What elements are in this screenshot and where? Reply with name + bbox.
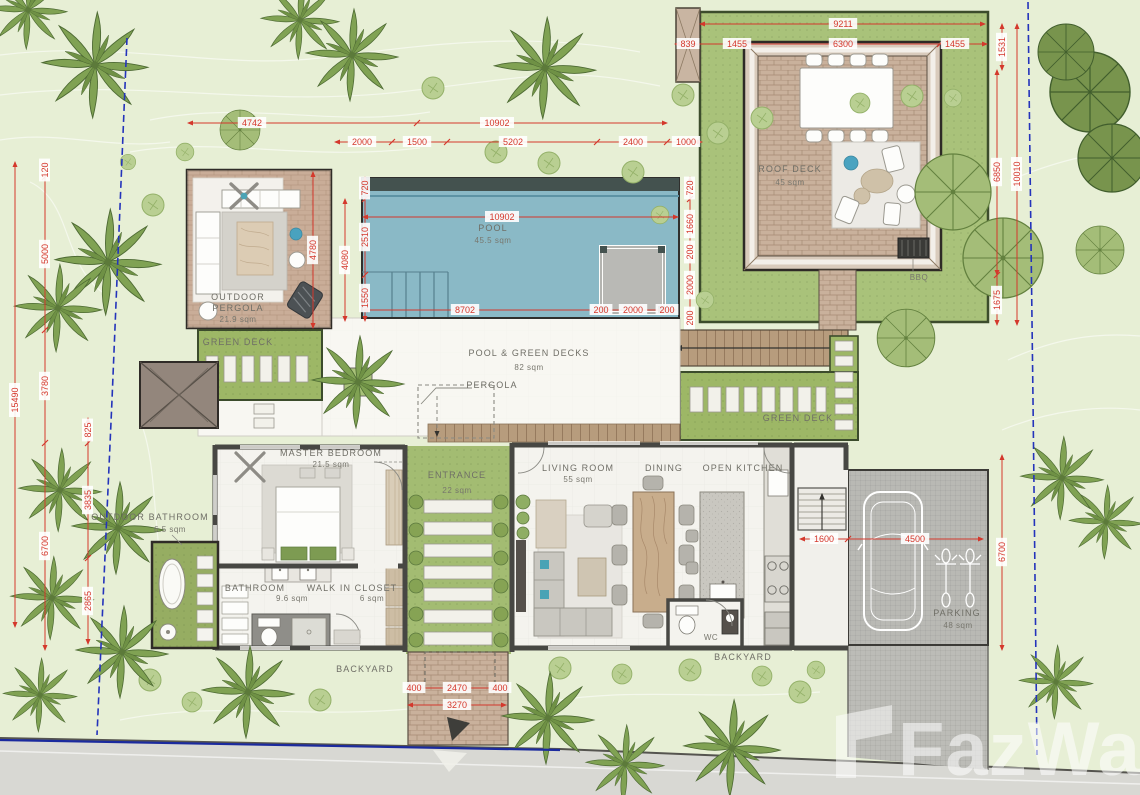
dimension-label: 2400	[619, 136, 647, 147]
svg-text:10902: 10902	[489, 212, 514, 222]
room-label: 6.5 sqm	[154, 525, 186, 534]
dimension-label: 3835	[82, 486, 93, 514]
pool	[362, 178, 679, 318]
pouf	[844, 156, 858, 170]
dimension-label: 4500	[901, 533, 929, 544]
room-label: OUTDOOR BATHROOM	[91, 512, 208, 522]
svg-text:3780: 3780	[40, 376, 50, 396]
svg-text:3835: 3835	[83, 490, 93, 510]
dimension-label: 2510	[359, 223, 370, 251]
dimension-label: 9211	[829, 18, 857, 29]
room-label: BBQ	[910, 273, 928, 282]
dimension-label: 200	[656, 304, 679, 315]
outdoor-bathroom	[152, 535, 218, 648]
dimension-label: 10010	[1011, 157, 1022, 191]
svg-text:9211: 9211	[833, 19, 852, 29]
dimension-label: 720	[684, 177, 695, 200]
svg-text:2470: 2470	[447, 683, 467, 693]
svg-text:6850: 6850	[992, 162, 1002, 182]
toilet	[261, 628, 277, 646]
dimension-label: 2000	[684, 271, 695, 299]
indoor-plants	[516, 495, 530, 539]
svg-text:720: 720	[685, 180, 695, 195]
floor-plan-drawing: 4742109022000150052022400100092118391455…	[0, 0, 1140, 795]
dimension-label: 1660	[684, 210, 695, 238]
dimension-label: 3270	[443, 699, 471, 710]
dining-table	[633, 492, 674, 612]
room-label: 22 sqm	[442, 486, 471, 495]
dimension-label: 4780	[307, 236, 318, 264]
svg-text:3270: 3270	[447, 700, 467, 710]
svg-text:400: 400	[492, 683, 507, 693]
main-house	[215, 443, 848, 654]
room-label: PERGOLA	[212, 303, 263, 313]
dimension-label: 200	[684, 241, 695, 264]
svg-text:6300: 6300	[833, 39, 853, 49]
dimension-label: 5202	[499, 136, 527, 147]
room-label: PARKING	[933, 608, 981, 618]
svg-text:720: 720	[360, 180, 370, 195]
coffee-table	[578, 558, 606, 596]
room-label: 45 sqm	[775, 178, 804, 187]
dimension-label: 2865	[82, 587, 93, 615]
room-label: BACKYARD	[336, 664, 394, 674]
dimension-label: 1500	[403, 136, 431, 147]
room-label: OUTDOOR	[211, 292, 265, 302]
svg-text:1000: 1000	[676, 137, 696, 147]
backyard-walkway	[408, 652, 508, 745]
dimension-label: 1455	[723, 38, 751, 49]
svg-text:8702: 8702	[455, 305, 475, 315]
room-label: GREEN DECK	[203, 337, 274, 347]
dimension-label: 200	[590, 304, 613, 315]
svg-text:4500: 4500	[905, 534, 925, 544]
dimension-label: 1000	[672, 136, 700, 147]
room-label: 45.5 sqm	[475, 236, 512, 245]
room-label: POOL	[478, 223, 507, 233]
gate-roof	[140, 362, 218, 428]
room-label: WALK IN CLOSET	[307, 583, 398, 593]
armchair	[584, 505, 612, 527]
toilet	[679, 616, 695, 634]
svg-text:2000: 2000	[352, 137, 372, 147]
svg-text:1455: 1455	[945, 39, 965, 49]
dimension-label: 2000	[619, 304, 647, 315]
room-label: WC	[704, 633, 718, 642]
svg-text:6700: 6700	[40, 536, 50, 556]
chaise	[536, 500, 566, 548]
svg-text:10902: 10902	[484, 118, 509, 128]
dimension-label: 120	[39, 159, 50, 182]
room-label: LIVING ROOM	[542, 463, 614, 473]
dimension-label: 400	[489, 682, 512, 693]
room-label: 21.9 sqm	[220, 315, 257, 324]
svg-text:400: 400	[406, 683, 421, 693]
svg-text:200: 200	[593, 305, 608, 315]
svg-text:200: 200	[659, 305, 674, 315]
dimension-label: 825	[82, 419, 93, 442]
svg-text:120: 120	[40, 162, 50, 177]
room-label: BATHROOM	[225, 583, 285, 593]
roof-deck-path	[819, 270, 856, 330]
dimension-label: 1455	[941, 38, 969, 49]
svg-text:2510: 2510	[360, 227, 370, 247]
room-label: PERGOLA	[466, 380, 517, 390]
dimension-label: 10902	[485, 211, 519, 222]
room-label: GREEN DECK	[763, 413, 834, 423]
svg-text:5000: 5000	[40, 244, 50, 264]
dimension-label: 1600	[810, 533, 838, 544]
fridge	[765, 612, 790, 645]
dimension-label: 6700	[996, 538, 1007, 566]
room-label: POOL & GREEN DECKS	[469, 348, 590, 358]
svg-text:15490: 15490	[10, 387, 20, 412]
dimension-label: 839	[677, 38, 700, 49]
dimension-label: 720	[359, 177, 370, 200]
room-label: 6 sqm	[360, 594, 384, 603]
svg-text:200: 200	[685, 244, 695, 259]
wardrobe	[386, 470, 402, 545]
dimension-label: 8702	[451, 304, 479, 315]
room-label: ROOF DECK	[758, 164, 821, 174]
room-label: DINING	[645, 463, 683, 473]
svg-text:825: 825	[83, 422, 93, 437]
room-label: 48 sqm	[943, 621, 972, 630]
svg-text:1531: 1531	[997, 37, 1007, 57]
svg-text:10010: 10010	[1012, 161, 1022, 186]
boardwalk	[660, 330, 848, 366]
svg-text:1600: 1600	[814, 534, 834, 544]
roof-deck-lounge	[832, 142, 920, 228]
dimension-label: 4742	[238, 117, 266, 128]
watermark-text: FazWaz	[898, 707, 1140, 792]
dimension-label: 1675	[991, 286, 1002, 314]
svg-text:6700: 6700	[997, 542, 1007, 562]
room-label: OPEN KITCHEN	[703, 463, 784, 473]
svg-text:4780: 4780	[308, 240, 318, 260]
svg-text:1500: 1500	[407, 137, 427, 147]
dimension-label: 2470	[443, 682, 471, 693]
svg-text:2000: 2000	[623, 305, 643, 315]
dimension-label: 3780	[39, 372, 50, 400]
svg-text:1550: 1550	[360, 288, 370, 308]
dimension-label: 4080	[339, 246, 350, 274]
svg-text:839: 839	[680, 39, 695, 49]
tv-console	[516, 540, 526, 612]
svg-text:4742: 4742	[242, 118, 262, 128]
wood-strip	[428, 424, 680, 442]
svg-text:1660: 1660	[685, 214, 695, 234]
dimension-label: 6700	[39, 532, 50, 560]
svg-text:4080: 4080	[340, 250, 350, 270]
room-label: MASTER BEDROOM	[280, 448, 382, 458]
room-label: 9.6 sqm	[276, 594, 308, 603]
svg-text:1675: 1675	[992, 290, 1002, 310]
pool-platform	[600, 246, 665, 313]
svg-text:200: 200	[685, 310, 695, 325]
room-label: 21.5 sqm	[313, 460, 350, 469]
entrance-steps	[424, 500, 492, 645]
room-label: ENTRANCE	[428, 470, 486, 480]
room-label: 55 sqm	[563, 475, 592, 484]
svg-text:2865: 2865	[83, 591, 93, 611]
stairs	[798, 488, 846, 530]
bench	[334, 630, 360, 644]
dimension-label: 2000	[348, 136, 376, 147]
dimension-label: 1531	[996, 33, 1007, 61]
dimension-label: 6300	[829, 38, 857, 49]
shower	[292, 618, 326, 646]
dimension-label: 10902	[480, 117, 514, 128]
dimension-label: 5000	[39, 240, 50, 268]
dimension-label: 1550	[359, 284, 370, 312]
room-label: 82 sqm	[514, 363, 543, 372]
floor-plan-page: 4742109022000150052022400100092118391455…	[0, 0, 1140, 795]
dimension-label: 15490	[9, 383, 20, 417]
dimension-label: 200	[684, 307, 695, 330]
svg-text:2400: 2400	[623, 137, 643, 147]
dimension-label: 6850	[991, 158, 1002, 186]
svg-text:1455: 1455	[727, 39, 747, 49]
dimension-label: 400	[403, 682, 426, 693]
svg-text:2000: 2000	[685, 275, 695, 295]
svg-text:5202: 5202	[503, 137, 523, 147]
room-label: BACKYARD	[714, 652, 772, 662]
